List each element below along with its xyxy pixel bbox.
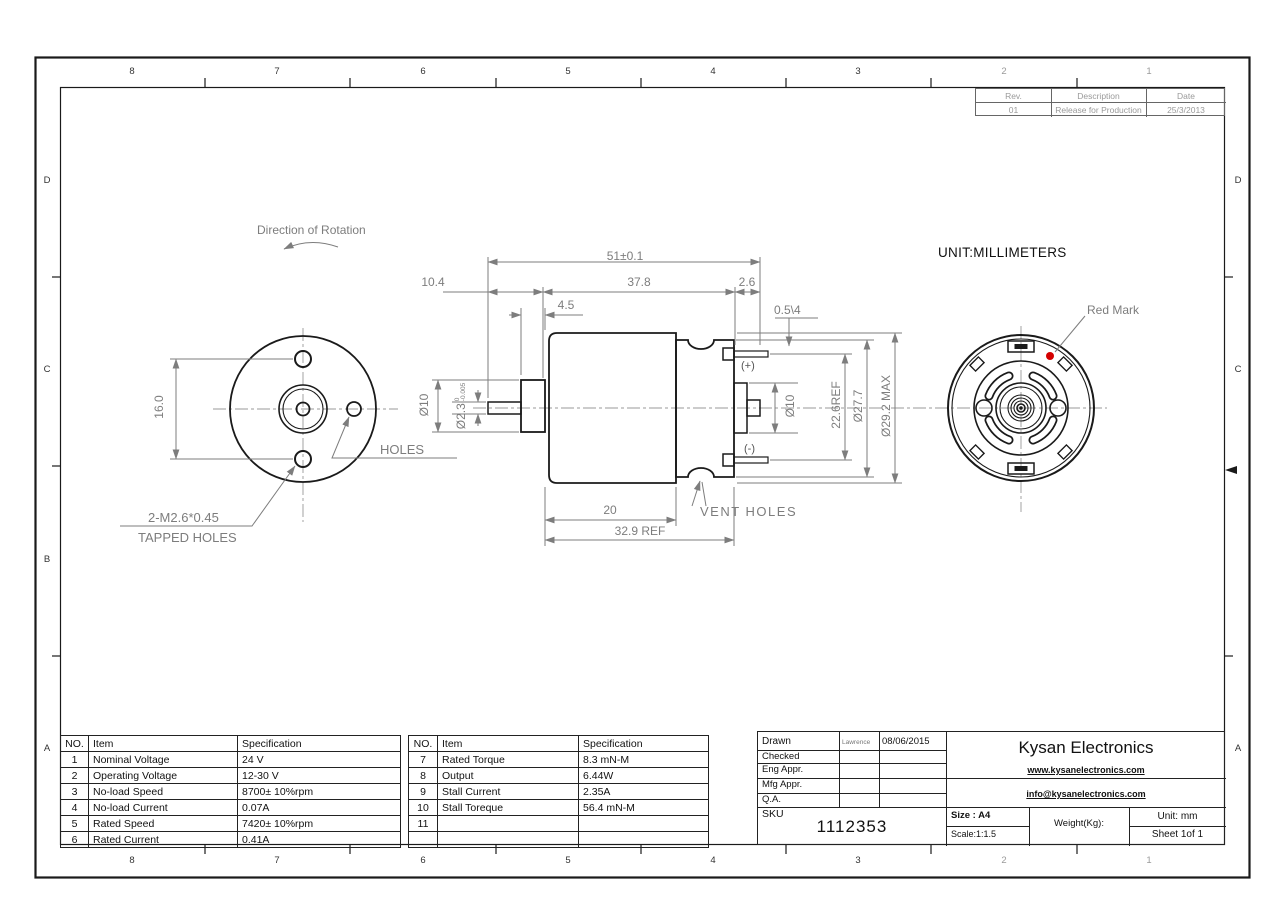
size-label: Size : A4 (951, 811, 990, 821)
zone-number: 2 (993, 856, 1015, 866)
drawn-name: Lawrence (842, 739, 870, 746)
zone-number: 2 (993, 67, 1015, 77)
col-header-spec: Specification (238, 736, 401, 752)
rev-value: 01 (976, 106, 1051, 115)
red-mark-dot (1046, 352, 1054, 360)
tapped-holes-note-line2: TAPPED HOLES (138, 531, 237, 544)
mfg-appr-label: Mfg Appr. (762, 780, 802, 790)
dia-10-right: Ø10 (784, 366, 796, 446)
dia-10-left: Ø10 (418, 365, 430, 445)
zone-number: 5 (557, 67, 579, 77)
dia-29-2-max: Ø29.2 MAX (880, 366, 892, 446)
date-header: Date (1146, 92, 1226, 101)
dim-4-5: 4.5 (550, 299, 582, 311)
dim-20: 20 (585, 504, 635, 516)
table-row: 10Stall Toreque56.4 mN-M (409, 800, 709, 816)
zone-number: 4 (702, 67, 724, 77)
checked-label: Checked (762, 752, 800, 762)
table-row: 1Nominal Voltage24 V (61, 752, 401, 768)
revision-table: Rev. Description Date 01 Release for Pro… (975, 88, 1225, 116)
zone-letter: A (1231, 744, 1245, 754)
front-bushing (521, 380, 545, 432)
zone-number: 8 (121, 856, 143, 866)
dia-2-3-with-tolerance: Ø2.30-0.005 (451, 366, 471, 446)
tapped-holes-note-line1: 2-M2.6*0.45 (148, 511, 219, 524)
vent-holes-label: VENT HOLES (700, 505, 797, 518)
dim-2-6: 2.6 (732, 276, 762, 288)
dia-2-3: Ø2.3 (455, 403, 467, 429)
table-row: NO. Item Specification (61, 736, 401, 752)
dim-37-8: 37.8 (614, 276, 664, 288)
col-header-spec: Specification (579, 736, 709, 752)
direction-of-rotation-label: Direction of Rotation (257, 224, 366, 236)
rev-header: Rev. (976, 92, 1051, 101)
table-row: 2Operating Voltage12-30 V (61, 768, 401, 784)
spec-table-right: NO. Item Specification 7Rated Torque8.3 … (408, 735, 709, 848)
table-row: 8Output6.44W (409, 768, 709, 784)
company-name: Kysan Electronics (946, 739, 1226, 758)
zone-number: 8 (121, 67, 143, 77)
table-row: 9Stall Current2.35A (409, 784, 709, 800)
drawn-label: Drawn (762, 736, 791, 747)
terminal-tab-top (723, 348, 734, 360)
zone-number: 5 (557, 856, 579, 866)
zone-number: 1 (1138, 856, 1160, 866)
weight-label: Weight(Kg): (1029, 819, 1129, 829)
engineering-drawing-sheet: 8 7 6 5 4 3 2 1 8 7 6 5 4 3 2 1 D C B A … (0, 0, 1286, 909)
dimension-lines (120, 242, 1085, 546)
unit-note: UNIT:MILLIMETERS (938, 246, 1067, 260)
zone-number: 6 (412, 856, 434, 866)
company-website: www.kysanelectronics.com (946, 766, 1226, 776)
dia-27-7: Ø27.7 (852, 366, 864, 446)
red-mark-label: Red Mark (1087, 304, 1139, 316)
dim-51: 51±0.1 (585, 250, 665, 262)
zone-number: 3 (847, 856, 869, 866)
plus-terminal-label: (+) (741, 361, 755, 372)
title-block: Drawn Lawrence 08/06/2015 Checked Eng Ap… (757, 731, 1225, 845)
table-row: 5Rated Speed7420± 10%rpm (61, 816, 401, 832)
scale-label: Scale:1:1.5 (951, 830, 996, 840)
col-header-item: Item (89, 736, 238, 752)
frame-center-arrow (1225, 466, 1237, 474)
rev-date: 25/3/2013 (1146, 106, 1226, 115)
zone-number: 1 (1138, 67, 1160, 77)
zone-letter: B (40, 555, 54, 565)
col-header-item: Item (438, 736, 579, 752)
zone-letter: C (40, 365, 54, 375)
terminal-tab-bottom (723, 454, 734, 466)
centerlines (213, 326, 1107, 522)
drawn-date: 08/06/2015 (882, 737, 930, 747)
zone-number: 4 (702, 856, 724, 866)
col-header-no: NO. (409, 736, 438, 752)
zone-letter: D (1231, 176, 1245, 186)
table-row: NO. Item Specification (409, 736, 709, 752)
zone-letter: A (40, 744, 54, 754)
rev-description: Release for Production (1051, 106, 1146, 115)
table-row (409, 832, 709, 848)
terminal-blade-bottom (734, 457, 768, 463)
dim-10-4: 10.4 (412, 276, 454, 288)
zone-number: 7 (266, 67, 288, 77)
zone-number: 6 (412, 67, 434, 77)
eng-appr-label: Eng Appr. (762, 765, 803, 775)
tol-lower: -0.005 (461, 383, 467, 401)
table-row: 3No-load Speed8700± 10%rpm (61, 784, 401, 800)
dim-16: 16.0 (153, 367, 165, 447)
description-header: Description (1051, 92, 1146, 101)
dim-0-5-4: 0.5\4 (774, 304, 801, 316)
table-row: 7Rated Torque8.3 mN-M (409, 752, 709, 768)
zone-number: 3 (847, 67, 869, 77)
col-header-no: NO. (61, 736, 89, 752)
minus-terminal-label: (-) (744, 444, 755, 455)
zone-letter: D (40, 176, 54, 186)
sheet-label: Sheet 1of 1 (1129, 829, 1226, 840)
dim-32-9ref: 32.9 REF (605, 525, 675, 537)
spec-table-left: NO. Item Specification 1Nominal Voltage2… (60, 735, 401, 848)
qa-label: Q.A. (762, 795, 781, 805)
company-email: info@kysanelectronics.com (946, 790, 1226, 800)
sku-value: 1112353 (758, 818, 946, 837)
terminal-blade-top (734, 351, 768, 357)
zone-number: 7 (266, 856, 288, 866)
zone-letter: C (1231, 365, 1245, 375)
dim-22-6ref: 22.6REF (830, 365, 842, 445)
unit-label: Unit: mm (1129, 811, 1226, 822)
table-row: 11 (409, 816, 709, 832)
table-row: 6Rated Current0.41A (61, 832, 401, 848)
table-row: 4No-load Current0.07A (61, 800, 401, 816)
